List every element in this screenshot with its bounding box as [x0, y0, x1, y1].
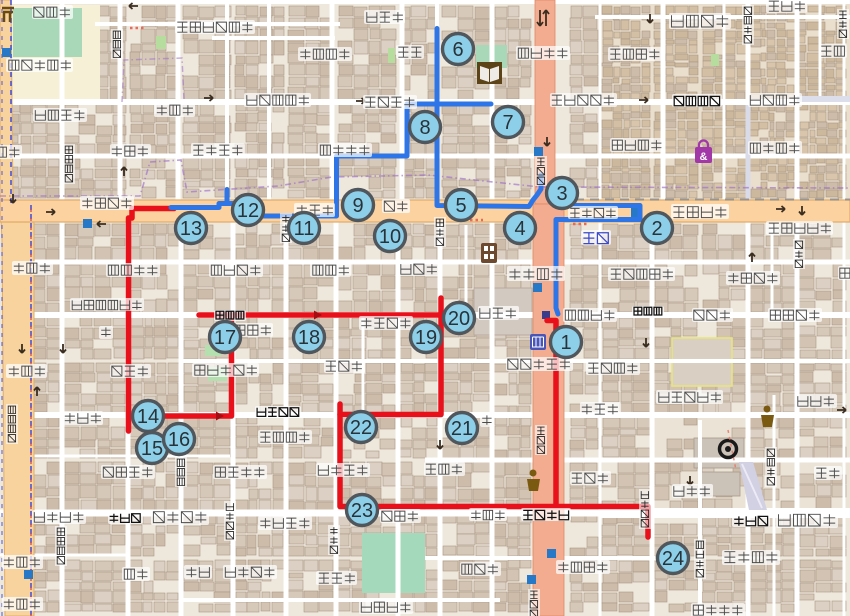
- svg-text:6: 6: [452, 39, 463, 61]
- svg-text:8: 8: [419, 117, 430, 139]
- svg-text:20: 20: [448, 308, 470, 330]
- svg-text:9: 9: [352, 195, 363, 217]
- svg-text:5: 5: [455, 195, 466, 217]
- svg-text:22: 22: [350, 417, 372, 439]
- svg-text:19: 19: [415, 327, 437, 349]
- svg-text:2: 2: [651, 218, 662, 240]
- svg-text:17: 17: [214, 327, 236, 349]
- svg-text:24: 24: [662, 548, 684, 570]
- svg-text:14: 14: [137, 406, 159, 428]
- svg-text:15: 15: [141, 438, 163, 460]
- svg-text:23: 23: [351, 500, 373, 522]
- svg-text:18: 18: [298, 327, 320, 349]
- svg-text:11: 11: [294, 218, 315, 240]
- svg-text:12: 12: [237, 200, 259, 222]
- svg-text:4: 4: [514, 218, 525, 240]
- svg-text:21: 21: [451, 418, 473, 440]
- svg-text:1: 1: [560, 332, 571, 354]
- svg-text:7: 7: [502, 112, 513, 134]
- svg-text:3: 3: [556, 183, 567, 205]
- svg-text:&: &: [700, 151, 708, 163]
- svg-text:16: 16: [168, 429, 190, 451]
- svg-text:10: 10: [379, 226, 401, 248]
- svg-text:13: 13: [180, 218, 202, 240]
